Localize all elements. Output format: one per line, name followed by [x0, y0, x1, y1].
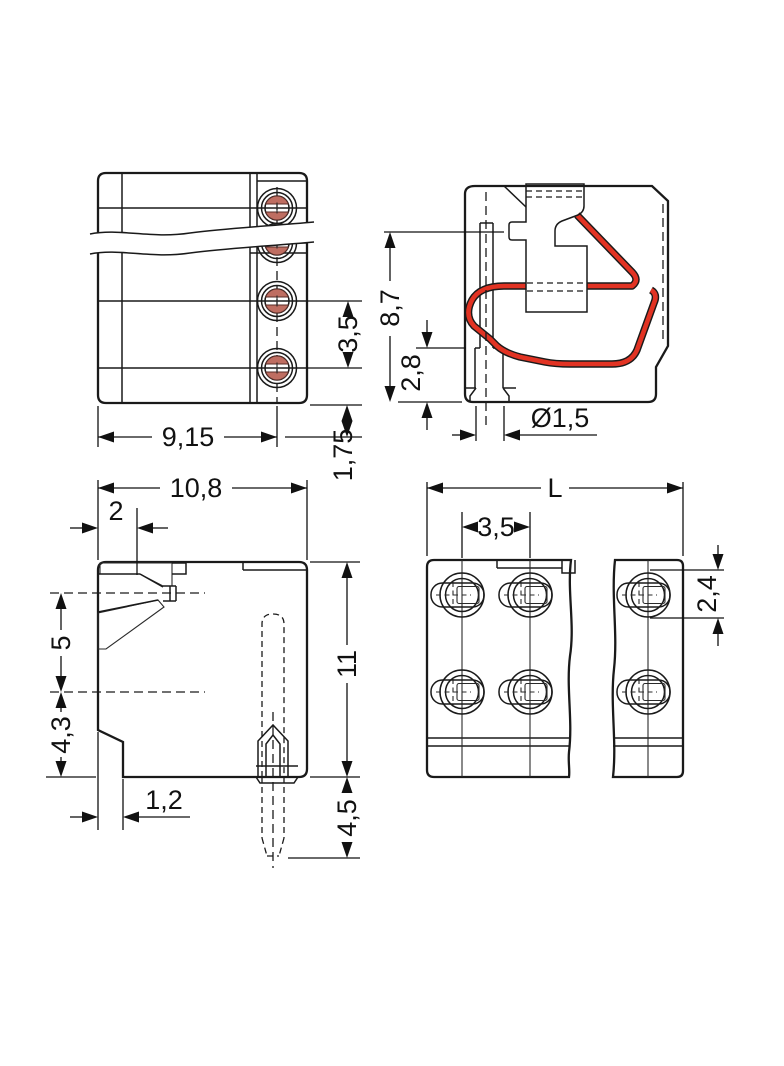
dim-hole-diameter-label: Ø1,5: [531, 403, 590, 433]
dim-section-height-label: 8,7: [375, 289, 405, 327]
dimension-body-width: 9,15: [98, 406, 277, 452]
dimension-front-pitch: 3,5: [462, 512, 530, 558]
dim-body-width-label: 9,15: [162, 422, 215, 452]
hatch-funnel: [98, 563, 186, 649]
dim-clamp-height-label: 2,8: [396, 354, 426, 392]
dimension-section-height: 8,7: [375, 232, 504, 402]
dimension-profile-height: 11: [310, 562, 362, 777]
dimension-edge-offset: 1,75: [285, 405, 362, 481]
housing-section-body: [465, 186, 668, 402]
dimension-port-pitch: 3,5: [307, 301, 363, 368]
wire-port: [431, 670, 484, 714]
cavity-chamfer-line: [504, 186, 526, 207]
terminal-block-drawing: 9,15 3,5 1,75: [0, 0, 784, 1066]
wire-port: [499, 573, 552, 617]
dim-profile-height-label: 11: [332, 650, 362, 678]
dim-foot-label: 1,2: [145, 785, 183, 815]
dimension-upper-pitch: 5: [46, 593, 76, 692]
hidden-edges: [486, 191, 663, 430]
wire-hole: [465, 223, 516, 401]
wire-port: [617, 670, 670, 714]
view-cross-section: 8,7 2,8 Ø1,5: [375, 184, 668, 441]
dim-total-length-label: L: [547, 473, 562, 503]
dim-upper-pitch-label: 5: [46, 635, 76, 650]
view-side-profile: 10,8 2 5 4,3 1,2 11: [46, 473, 362, 868]
front-face-lines: [428, 560, 682, 746]
dimension-pin-length: 4,5: [288, 777, 362, 858]
housing-profile-body: [98, 562, 307, 777]
view-side-broken: 9,15 3,5 1,75: [90, 173, 363, 481]
dimension-total-length: L: [427, 473, 683, 556]
column-centerlines: [462, 560, 648, 777]
view-front: L 3,5 2,4: [427, 473, 724, 777]
dimension-lower-height: 4,3: [46, 692, 96, 777]
wire-port: [431, 573, 484, 617]
dim-port-opening-label: 2,4: [692, 575, 722, 613]
dimension-profile-width: 10,8: [98, 473, 307, 560]
dim-front-pitch-label: 3,5: [477, 512, 515, 542]
clamp-spring: [468, 215, 655, 364]
dim-port-pitch-label: 3,5: [333, 315, 363, 353]
wire-port: [617, 573, 670, 617]
dim-profile-width-label: 10,8: [170, 473, 223, 503]
pusher: [509, 184, 587, 312]
wire-port: [499, 670, 552, 714]
dimension-hole-diameter: Ø1,5: [452, 403, 597, 441]
dim-pin-length-label: 4,5: [332, 799, 362, 837]
dim-mouth-label: 2: [108, 496, 123, 526]
dim-edge-offset-label: 1,75: [328, 429, 358, 482]
dimension-clamp-height: 2,8: [396, 320, 466, 430]
dim-lower-height-label: 4,3: [46, 716, 76, 754]
dimension-foot: 1,2: [70, 732, 190, 830]
technical-drawing-page: 9,15 3,5 1,75: [0, 0, 784, 1066]
top-recess-lines: [243, 562, 306, 570]
